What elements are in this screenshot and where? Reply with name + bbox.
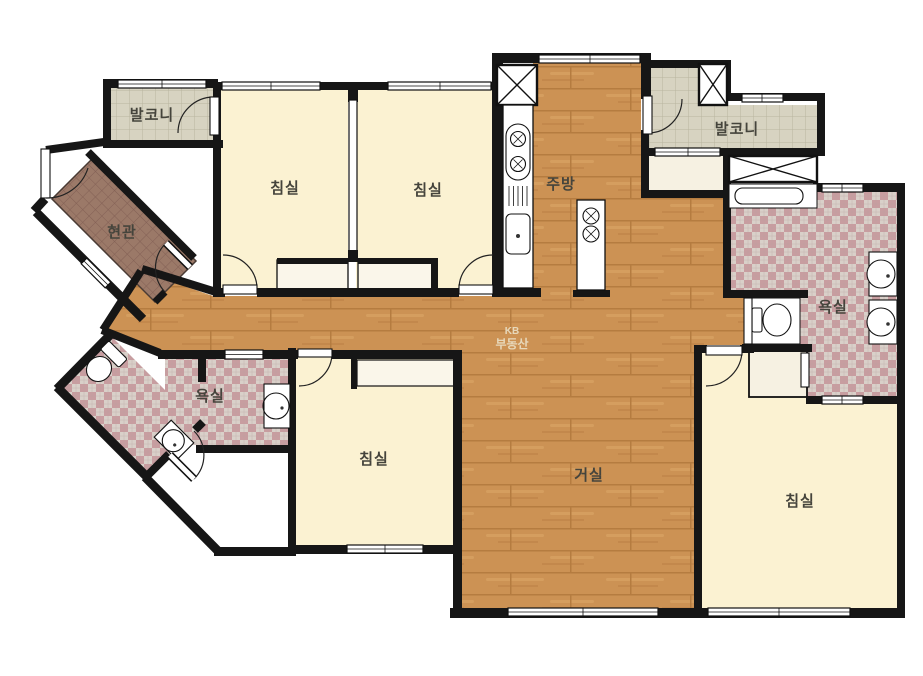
closet-bedroom-3 (351, 357, 454, 389)
window (347, 545, 423, 553)
window (388, 82, 491, 90)
x-closet-box (729, 156, 817, 182)
window (539, 55, 640, 63)
room-utility (649, 156, 723, 190)
sink-left-right (263, 384, 290, 428)
sink-right-2 (867, 300, 897, 344)
label-bedroom-1: 침실 (270, 180, 300, 197)
label-living: 거실 (574, 467, 604, 484)
label-balcony-tr: 발코니 (715, 121, 759, 138)
window (822, 184, 863, 192)
duct-x-box-balcony (699, 64, 727, 105)
label-bedroom-4: 침실 (785, 493, 815, 510)
door-closet-bedroom-4 (801, 353, 809, 387)
window (118, 80, 206, 88)
label-kitchen: 주방 (546, 175, 576, 193)
label-bedroom-2: 침실 (413, 182, 443, 199)
toilet-right (752, 304, 791, 336)
window (708, 608, 850, 616)
window (222, 82, 320, 90)
label-entrance: 현관 (107, 224, 137, 241)
label-bathroom-left: 욕실 (195, 388, 225, 405)
sink-right-1 (867, 252, 897, 296)
window (508, 608, 658, 616)
floor-plan-page: 발코니 침실 침실 주방 발코니 현관 욕실 욕실 침실 거실 침실 KB 부동… (0, 0, 923, 676)
kitchen-counter (503, 105, 533, 288)
label-balcony-tl: 발코니 (130, 107, 174, 124)
watermark-line2: 부동산 (495, 336, 528, 351)
door-toilet-niche (744, 298, 752, 344)
closet-bedroom-4 (749, 351, 807, 397)
label-bedroom-3: 침실 (359, 451, 389, 468)
closet-bedroom-1 (277, 258, 348, 290)
closet-bedroom-2 (358, 258, 438, 290)
window (655, 148, 720, 156)
bathtub (729, 184, 817, 208)
window (81, 258, 111, 288)
window (742, 94, 783, 102)
pocket-door-bathroom-left (225, 350, 263, 359)
label-bathroom-right: 욕실 (818, 299, 848, 316)
duct-x-box-kitchen (497, 65, 537, 105)
kitchen-island (577, 200, 605, 290)
window (822, 396, 863, 404)
watermark-line1: KB (505, 326, 519, 337)
floor-plan-canvas: 발코니 침실 침실 주방 발코니 현관 욕실 욕실 침실 거실 침실 KB 부동… (0, 0, 923, 676)
